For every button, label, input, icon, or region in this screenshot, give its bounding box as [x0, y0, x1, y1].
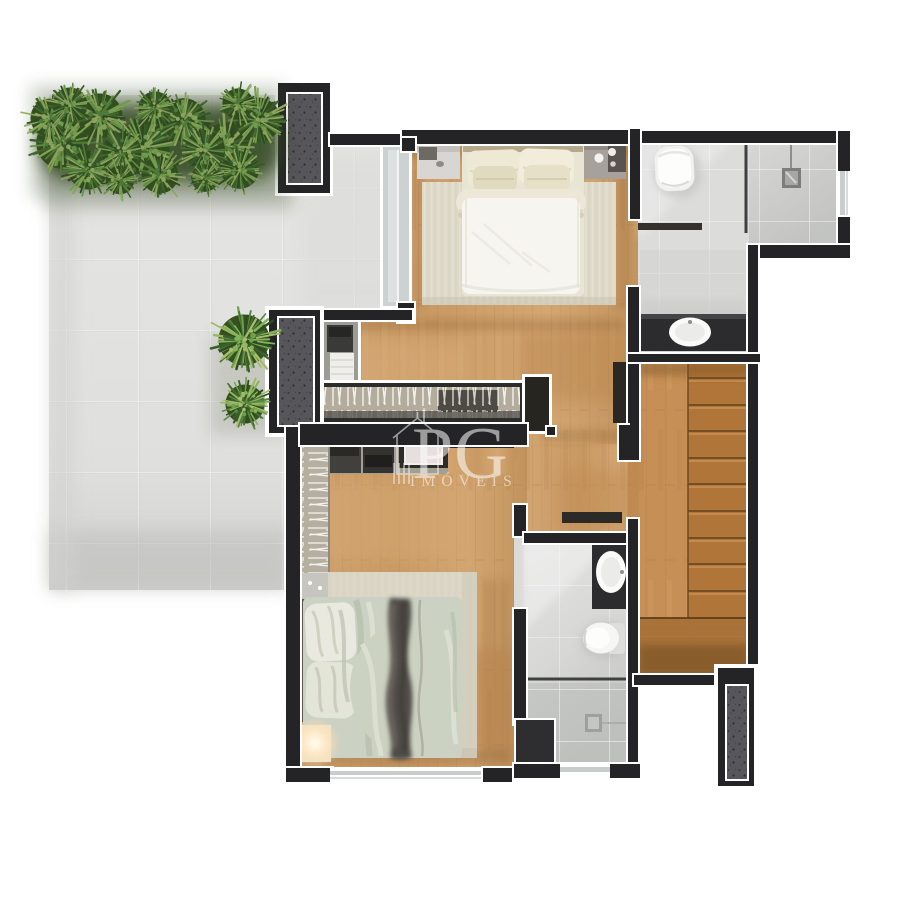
svg-text:IMÓVEIS: IMÓVEIS — [410, 473, 518, 490]
